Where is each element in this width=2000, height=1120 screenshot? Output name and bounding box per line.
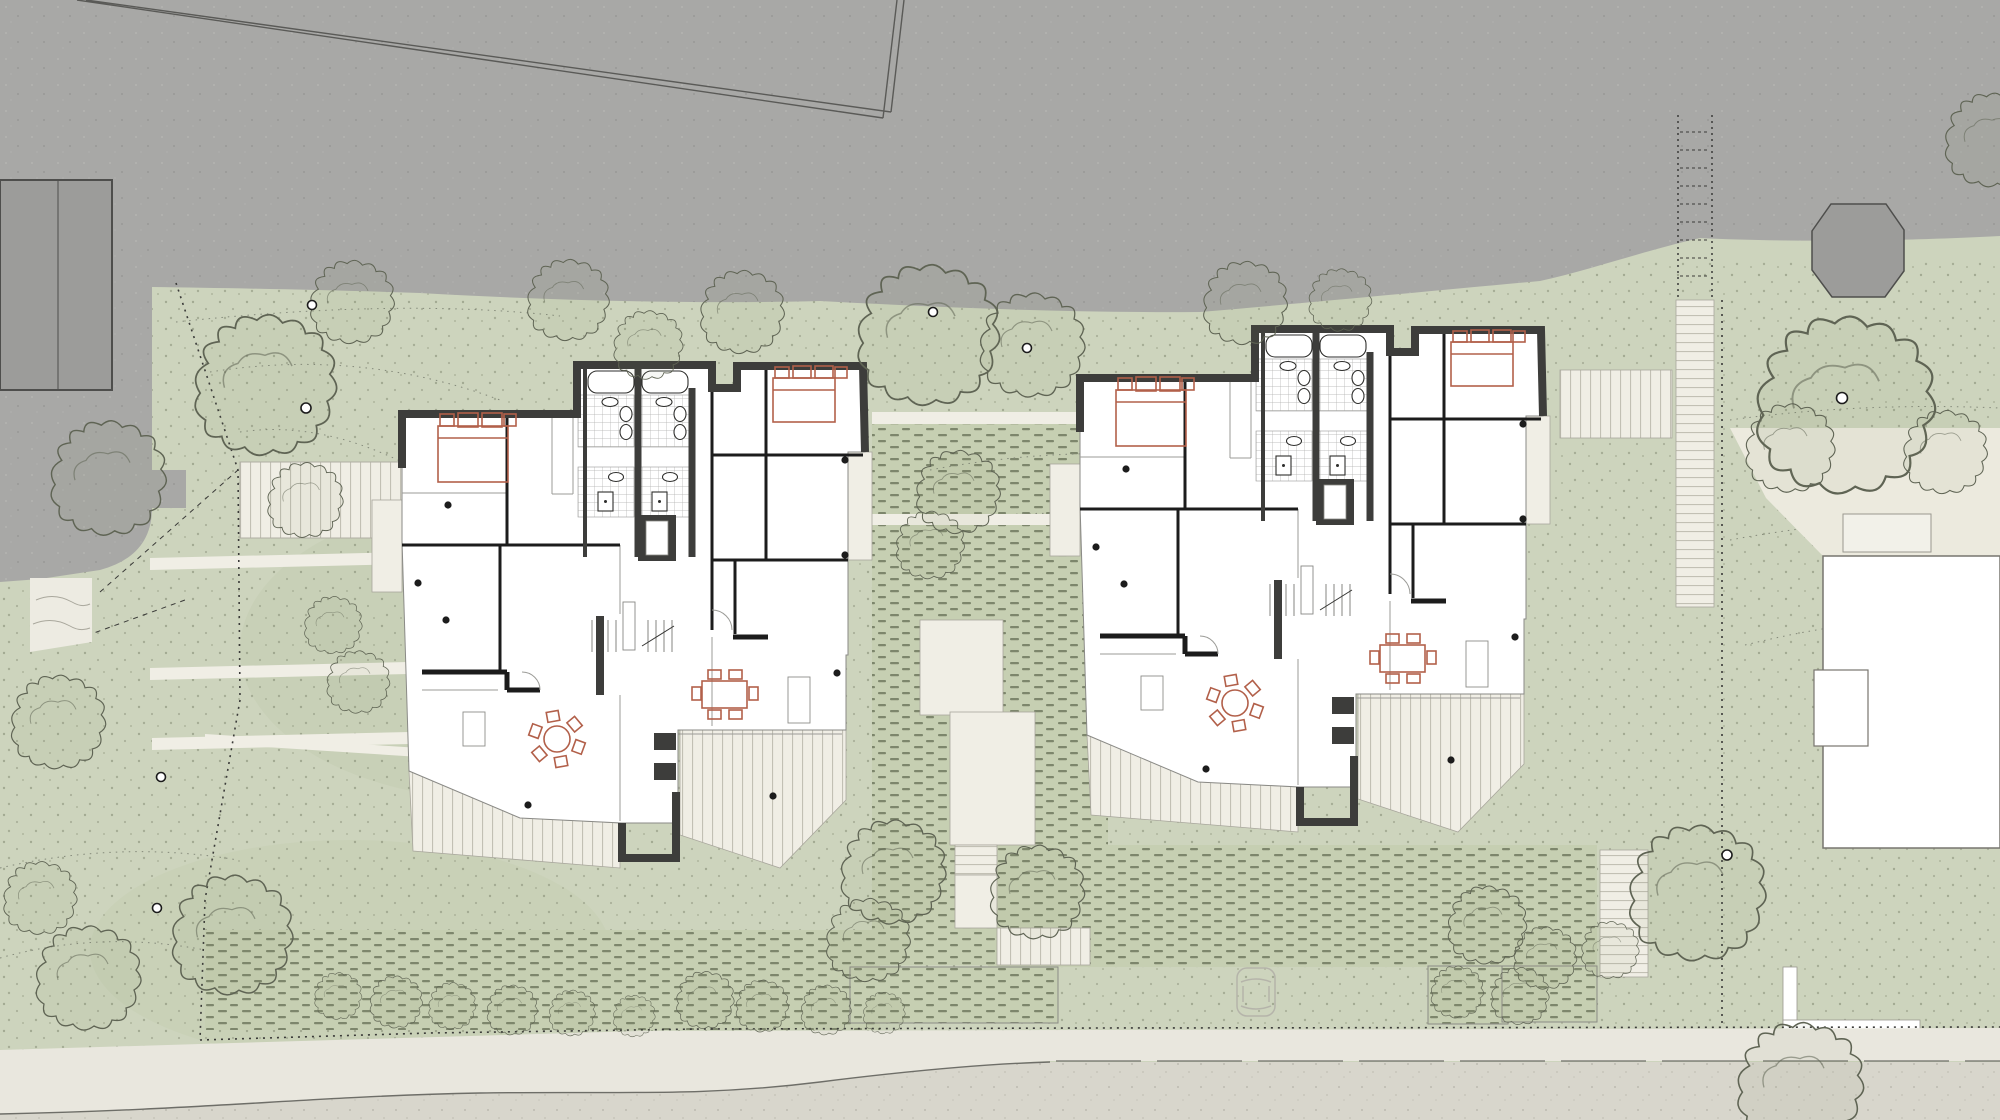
courtyard-terrace-band xyxy=(872,412,1108,424)
octagon-structure xyxy=(1812,204,1904,297)
east-court-outline xyxy=(1843,514,1931,552)
neighbor-building-east-annex xyxy=(1814,670,1868,746)
east-wide-steps xyxy=(1560,370,1672,438)
site-plan-canvas xyxy=(0,0,2000,1120)
courtyard-steps xyxy=(955,845,997,875)
east-long-stair-upper xyxy=(1676,300,1714,607)
house-b xyxy=(1050,329,1550,832)
west-paved-patch xyxy=(30,578,92,652)
house-a xyxy=(372,365,872,868)
neighbor-building-west xyxy=(0,180,112,390)
